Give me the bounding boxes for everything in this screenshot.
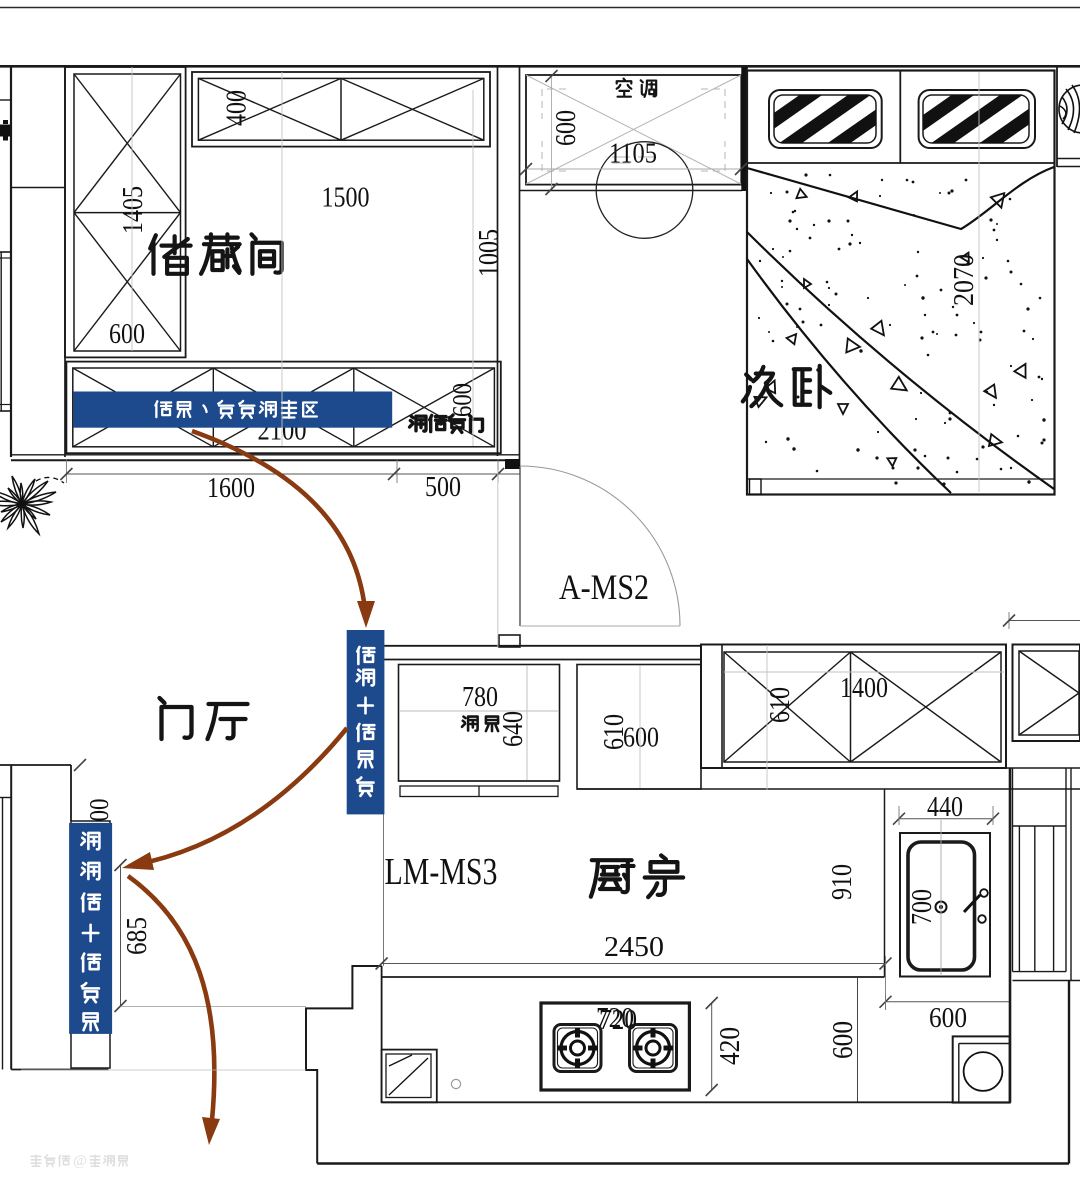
- svg-text:720: 720: [599, 1004, 637, 1036]
- svg-text:@: @: [73, 1153, 87, 1169]
- svg-text:1405: 1405: [117, 186, 149, 234]
- svg-text:685: 685: [121, 917, 153, 955]
- svg-text:600: 600: [447, 383, 477, 417]
- svg-text:600: 600: [929, 1002, 967, 1034]
- svg-text:600: 600: [623, 722, 659, 754]
- svg-text:A-MS2: A-MS2: [559, 567, 649, 607]
- svg-text:LM-MS3: LM-MS3: [385, 851, 498, 893]
- svg-text:1500: 1500: [322, 182, 370, 214]
- svg-text:640: 640: [497, 711, 529, 747]
- svg-text:2450: 2450: [604, 931, 664, 963]
- svg-text:420: 420: [714, 1027, 746, 1065]
- svg-text:610: 610: [764, 687, 796, 723]
- svg-text:440: 440: [927, 791, 963, 823]
- svg-text:780: 780: [462, 681, 498, 713]
- svg-text:2070: 2070: [948, 254, 980, 306]
- svg-text:00: 00: [84, 799, 114, 822]
- svg-text:600: 600: [827, 1021, 859, 1059]
- svg-text:700: 700: [906, 889, 938, 925]
- svg-text:1005: 1005: [473, 229, 505, 277]
- svg-text:600: 600: [109, 318, 145, 350]
- svg-text:1600: 1600: [207, 472, 255, 504]
- svg-text:910: 910: [826, 864, 858, 900]
- svg-text:1400: 1400: [840, 672, 888, 704]
- svg-text:500: 500: [425, 471, 461, 503]
- svg-text:600: 600: [550, 110, 582, 146]
- svg-text:400: 400: [221, 90, 253, 126]
